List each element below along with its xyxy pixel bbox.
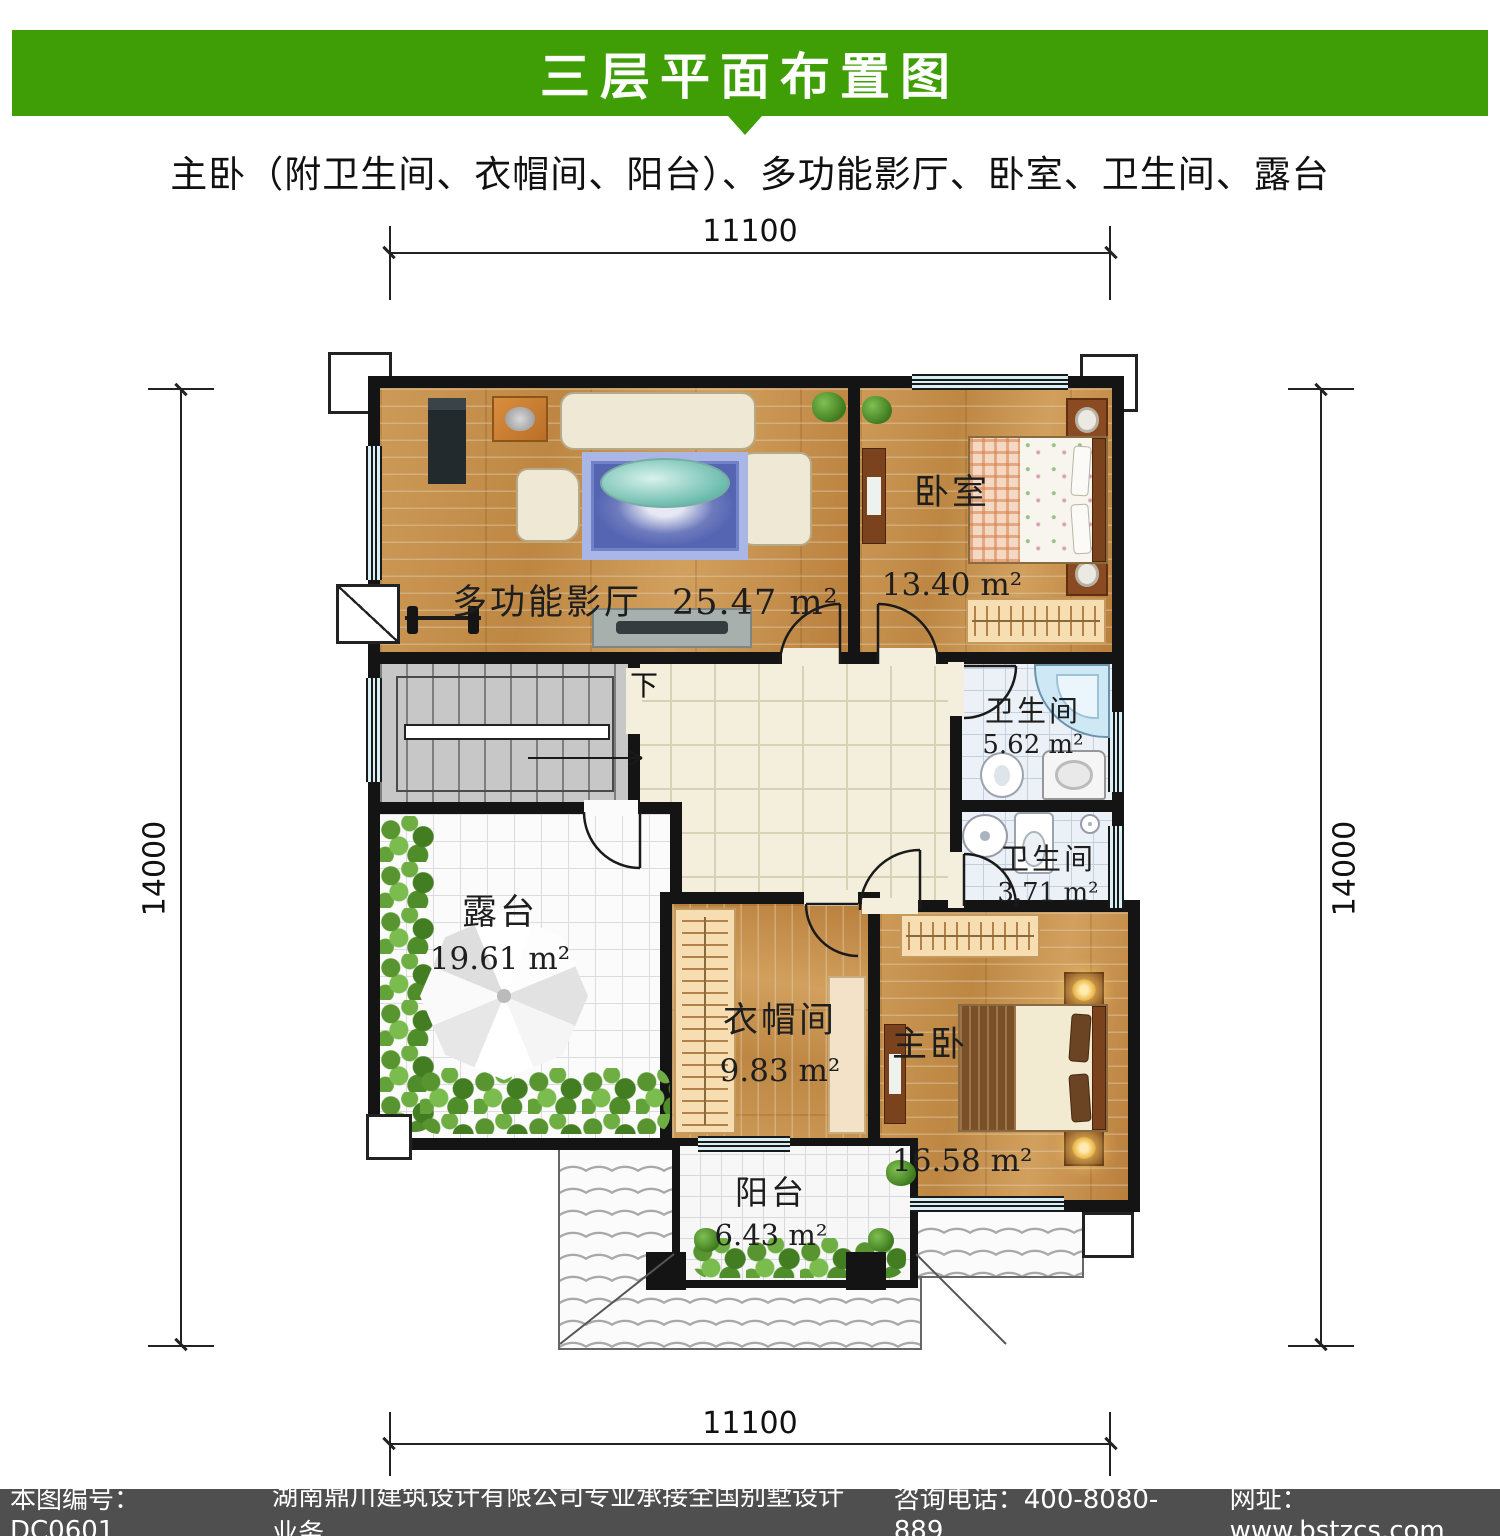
label-bedroom: 卧室13.40 m² (862, 464, 1042, 603)
room-name: 主卧 (892, 1016, 1022, 1067)
room-name: 卧室 (862, 464, 1042, 515)
room-area: 6.43 m² (706, 1218, 836, 1252)
room-name: 卫生间 (968, 688, 1098, 730)
room-area: 3.71 m² (988, 878, 1108, 908)
label-balcony: 阳台6.43 m² (706, 1166, 836, 1252)
label-closet: 衣帽间9.83 m² (700, 992, 860, 1089)
stairs-down-label: 下 (630, 664, 658, 704)
room-area: 13.40 m² (862, 567, 1042, 603)
label-bath2: 卫生间3.71 m² (988, 836, 1108, 908)
label-theater: 多功能影厅25.47 m² (452, 574, 832, 625)
room-name: 多功能影厅 (452, 583, 642, 623)
floor-plan-page: 三层平面布置图 主卧（附卫生间、衣帽间、阳台）、多功能影厅、卧室、卫生间、露台 … (0, 0, 1500, 1536)
room-area: 19.61 m² (420, 941, 580, 977)
room-name: 露台 (420, 884, 580, 935)
room-area: 9.83 m² (700, 1053, 860, 1089)
room-area: 16.58 m² (892, 1143, 1022, 1179)
room-name: 阳台 (706, 1166, 836, 1214)
door-swing-overlay (0, 0, 1500, 1536)
label-bath1: 卫生间5.62 m² (968, 688, 1098, 760)
room-name: 卫生间 (988, 836, 1108, 878)
room-area: 25.47 m² (672, 583, 839, 623)
room-name: 衣帽间 (700, 992, 860, 1043)
room-area: 5.62 m² (968, 730, 1098, 760)
label-master: 主卧16.58 m² (884, 1016, 1022, 1179)
label-terrace: 露台19.61 m² (420, 884, 580, 977)
